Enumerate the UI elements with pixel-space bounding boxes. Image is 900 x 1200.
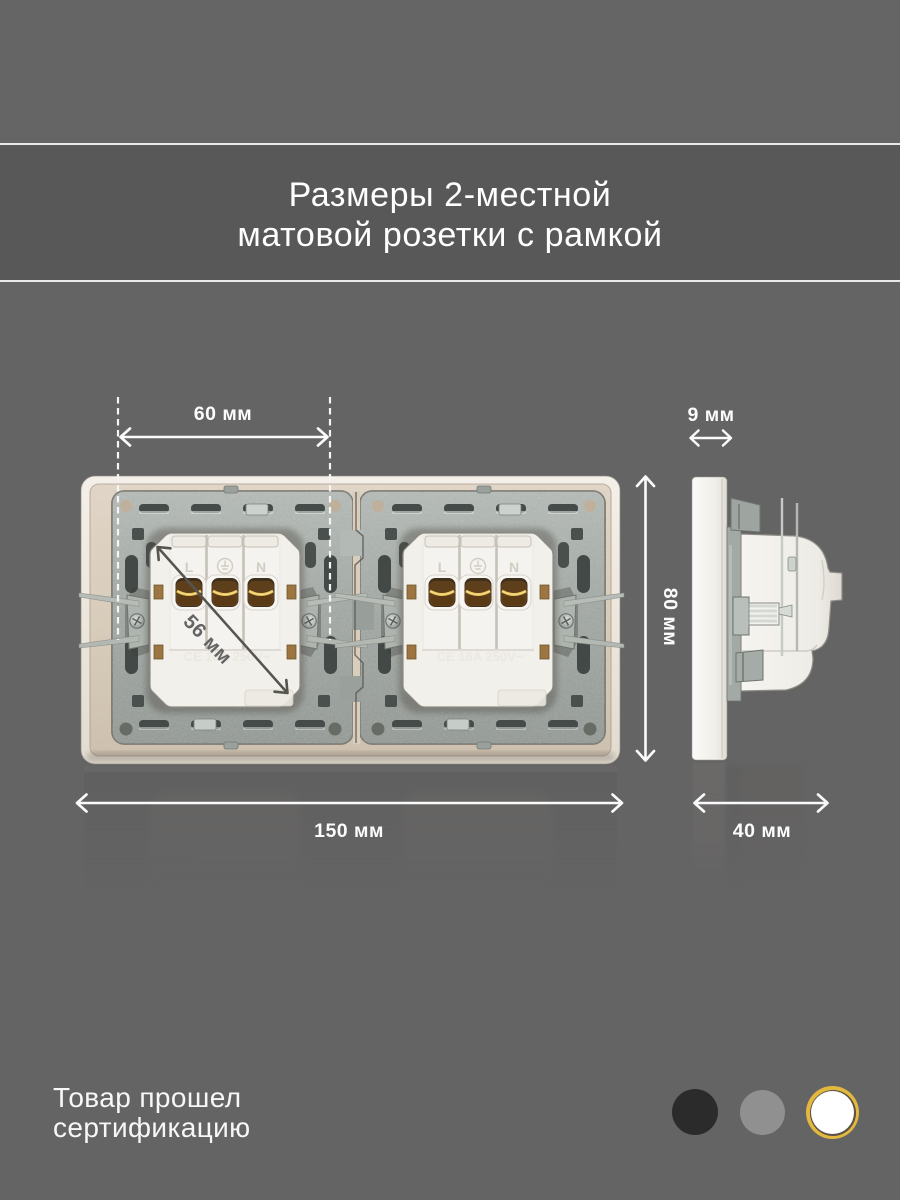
svg-text:9 мм: 9 мм [687, 404, 734, 426]
svg-text:80 мм: 80 мм [659, 588, 681, 646]
svg-text:60 мм: 60 мм [194, 403, 252, 425]
svg-text:40 мм: 40 мм [733, 820, 791, 842]
svg-text:150 мм: 150 мм [314, 820, 384, 842]
